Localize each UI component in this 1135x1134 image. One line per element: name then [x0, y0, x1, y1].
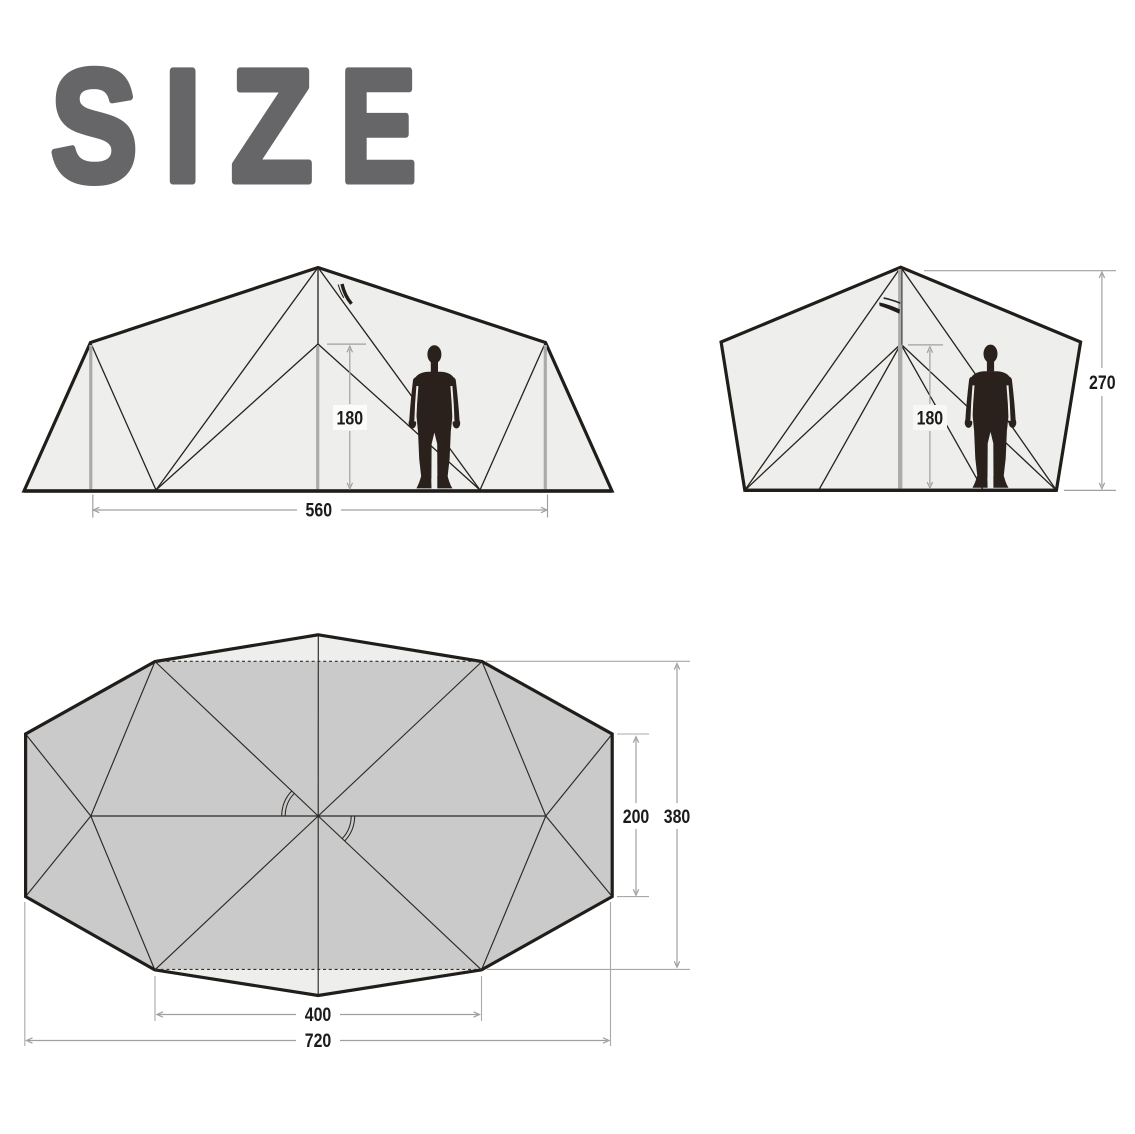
svg-text:400: 400 [305, 1005, 332, 1026]
svg-text:I: I [164, 36, 202, 215]
svg-text:180: 180 [917, 408, 944, 429]
svg-text:S: S [51, 36, 138, 215]
svg-text:720: 720 [305, 1031, 332, 1052]
svg-text:560: 560 [306, 501, 333, 522]
svg-text:E: E [340, 37, 416, 215]
svg-text:Z: Z [231, 37, 313, 216]
svg-text:270: 270 [1089, 373, 1116, 394]
svg-text:200: 200 [623, 807, 650, 828]
svg-text:380: 380 [664, 807, 691, 828]
svg-text:180: 180 [337, 409, 364, 430]
